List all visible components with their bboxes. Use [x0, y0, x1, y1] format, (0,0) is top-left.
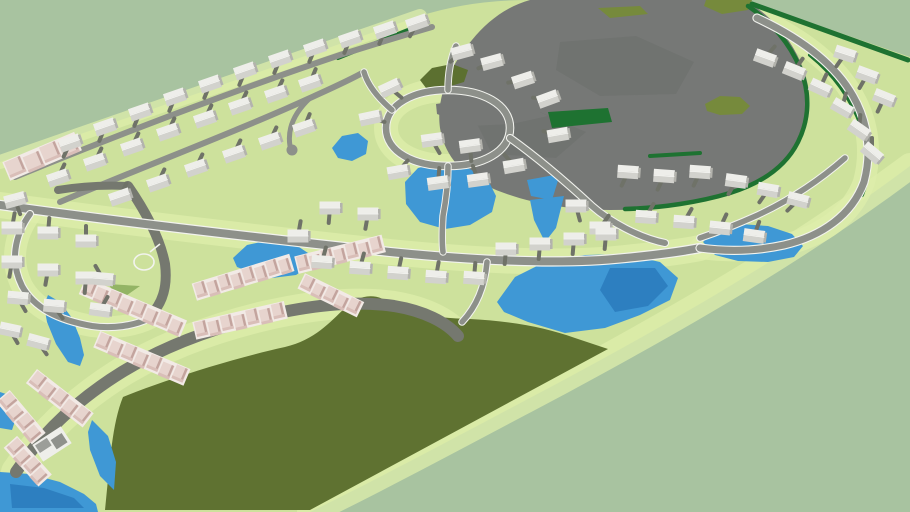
house-roof-south	[76, 241, 97, 248]
cul-de-sac-bulb	[287, 145, 298, 156]
house-roof-north	[596, 228, 617, 235]
house-roof-north	[320, 202, 341, 209]
house-roof-north	[530, 238, 551, 245]
house-roof-north	[566, 200, 587, 207]
house-roof-north	[76, 235, 97, 242]
house	[2, 256, 25, 269]
house-roof-south	[564, 239, 585, 246]
house-roof-north	[590, 222, 611, 229]
house	[76, 235, 99, 248]
house-roof-south	[530, 244, 551, 251]
house	[564, 233, 587, 246]
house	[530, 238, 553, 251]
house-roof-south	[2, 262, 23, 269]
house	[496, 243, 519, 256]
house-roof-south	[288, 236, 309, 243]
house-roof-south	[596, 234, 617, 241]
house-roof-south	[496, 249, 517, 256]
house-roof-south	[358, 214, 379, 221]
house-roof-north	[38, 227, 59, 234]
model-viewport[interactable]	[0, 0, 910, 512]
house	[596, 228, 619, 241]
house	[320, 202, 343, 215]
house-roof-south	[566, 206, 587, 213]
house-roof-south	[38, 270, 59, 277]
house-roof-north	[358, 208, 379, 215]
house-roof-north	[496, 243, 517, 250]
house	[38, 264, 61, 277]
house	[288, 230, 311, 243]
apartment-access-road	[58, 186, 128, 190]
house	[38, 227, 61, 240]
house	[673, 215, 697, 230]
house	[387, 266, 411, 281]
house-roof-south	[38, 233, 59, 240]
house	[349, 261, 373, 276]
house	[311, 255, 335, 270]
house	[2, 222, 25, 235]
house-roof-north	[2, 222, 23, 229]
house	[92, 272, 116, 287]
house	[653, 169, 677, 184]
house	[463, 271, 487, 286]
house	[7, 291, 31, 306]
house	[566, 200, 589, 213]
house	[635, 210, 659, 225]
house	[358, 208, 381, 221]
house-roof-north	[564, 233, 585, 240]
house-roof-north	[288, 230, 309, 237]
house	[617, 165, 641, 180]
house	[425, 270, 449, 285]
house-roof-south	[320, 208, 341, 215]
house	[709, 220, 733, 235]
house	[43, 299, 67, 314]
house	[689, 165, 713, 180]
house-roof-north	[2, 256, 23, 263]
house-roof-north	[38, 264, 59, 271]
community-3d-model[interactable]	[0, 0, 910, 512]
house-roof-south	[2, 228, 23, 235]
